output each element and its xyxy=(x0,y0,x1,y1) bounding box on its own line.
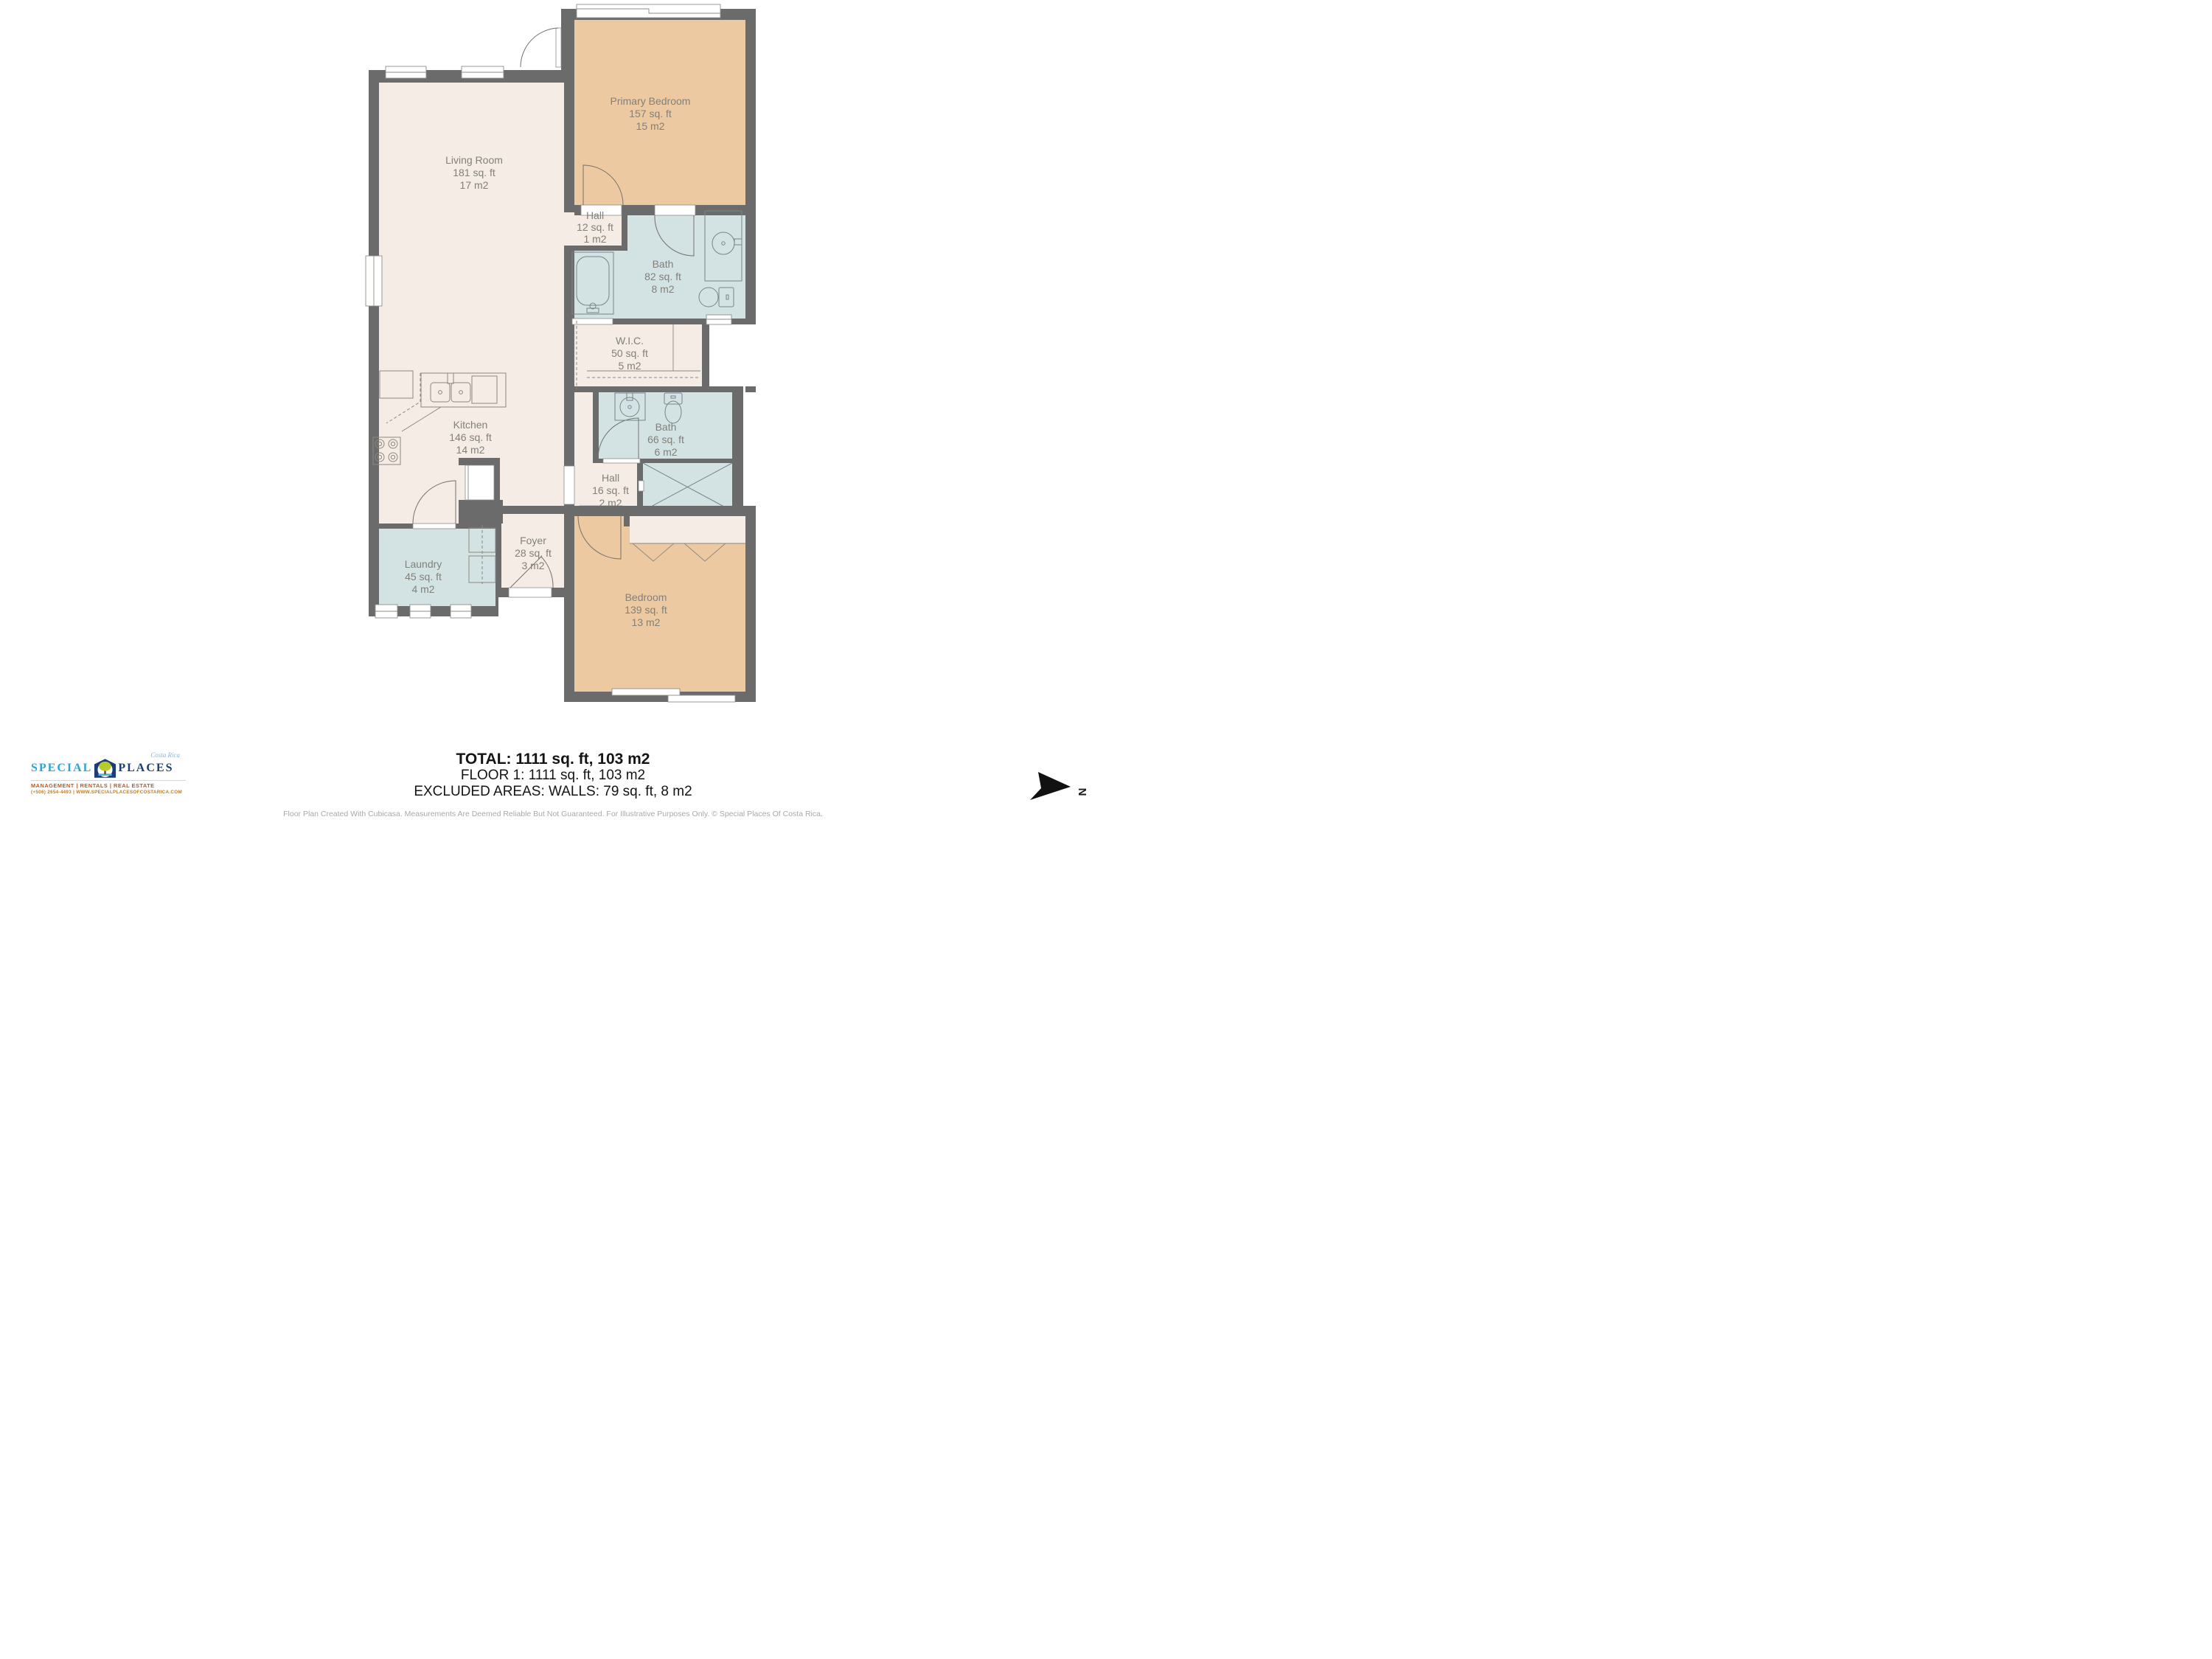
svg-text:45 sq. ft: 45 sq. ft xyxy=(405,571,442,582)
svg-text:Laundry: Laundry xyxy=(405,558,442,570)
svg-text:5 m2: 5 m2 xyxy=(618,360,641,372)
svg-text:Living Room: Living Room xyxy=(445,154,503,166)
svg-text:Foyer: Foyer xyxy=(520,535,546,546)
logo-text-places: PLACES xyxy=(118,762,173,775)
svg-text:17 m2: 17 m2 xyxy=(460,179,489,191)
svg-text:146 sq. ft: 146 sq. ft xyxy=(449,431,492,443)
svg-text:14 m2: 14 m2 xyxy=(456,444,485,456)
floor-plan-page: Hall 16 sq. ft 2 m2 xyxy=(0,0,1106,829)
svg-text:50 sq. ft: 50 sq. ft xyxy=(611,347,648,359)
corridor-floor xyxy=(574,386,593,463)
logo-tagline: MANAGEMENT | RENTALS | REAL ESTATE xyxy=(31,782,186,789)
bedroom-top-wall xyxy=(564,506,745,516)
svg-text:13 m2: 13 m2 xyxy=(632,616,661,628)
logo-brand-row: SPECIAL PLACES Costa Rica xyxy=(31,758,186,781)
svg-text:Hall: Hall xyxy=(586,209,604,221)
agency-logo: SPECIAL PLACES Costa Rica MANAGEMENT | R… xyxy=(31,758,186,795)
svg-text:28 sq. ft: 28 sq. ft xyxy=(515,547,552,559)
svg-text:6 m2: 6 m2 xyxy=(654,446,677,458)
svg-text:66 sq. ft: 66 sq. ft xyxy=(647,434,684,445)
logo-contact: (+506) 2654-4493 | WWW.SPECIALPLACESOFCO… xyxy=(31,790,186,795)
svg-text:12 sq. ft: 12 sq. ft xyxy=(577,221,613,233)
svg-text:Primary Bedroom: Primary Bedroom xyxy=(611,95,691,107)
svg-text:Bath: Bath xyxy=(653,258,674,270)
svg-text:8 m2: 8 m2 xyxy=(651,283,674,295)
svg-text:Kitchen: Kitchen xyxy=(453,419,488,431)
disclaimer: Floor Plan Created With Cubicasa. Measur… xyxy=(0,810,1106,818)
pantry-closet xyxy=(465,465,494,500)
house-tree-icon xyxy=(94,758,116,779)
svg-text:16 sq. ft: 16 sq. ft xyxy=(592,484,629,496)
window xyxy=(577,4,720,18)
svg-text:157 sq. ft: 157 sq. ft xyxy=(629,108,672,119)
svg-text:Bath: Bath xyxy=(655,421,677,433)
window xyxy=(706,315,731,324)
bath-82-floor xyxy=(627,215,745,319)
svg-text:1 m2: 1 m2 xyxy=(583,233,606,245)
svg-text:W.I.C.: W.I.C. xyxy=(616,335,644,347)
svg-text:139 sq. ft: 139 sq. ft xyxy=(625,604,667,616)
svg-text:3 m2: 3 m2 xyxy=(521,560,544,571)
svg-text:82 sq. ft: 82 sq. ft xyxy=(644,271,681,282)
svg-text:Hall: Hall xyxy=(602,472,619,484)
svg-text:Bedroom: Bedroom xyxy=(625,591,667,603)
bath-82-tub-area-floor xyxy=(574,251,632,319)
entry-door-primary-side xyxy=(521,28,561,67)
bedroom-closet-floor xyxy=(630,516,745,543)
logo-text-special: SPECIAL xyxy=(31,762,92,775)
logo-text-region: Costa Rica xyxy=(150,751,180,759)
floor-plan-canvas: Hall 16 sq. ft 2 m2 xyxy=(0,0,1106,829)
svg-text:4 m2: 4 m2 xyxy=(411,583,434,595)
svg-text:15 m2: 15 m2 xyxy=(636,120,665,132)
svg-text:181 sq. ft: 181 sq. ft xyxy=(453,167,495,178)
